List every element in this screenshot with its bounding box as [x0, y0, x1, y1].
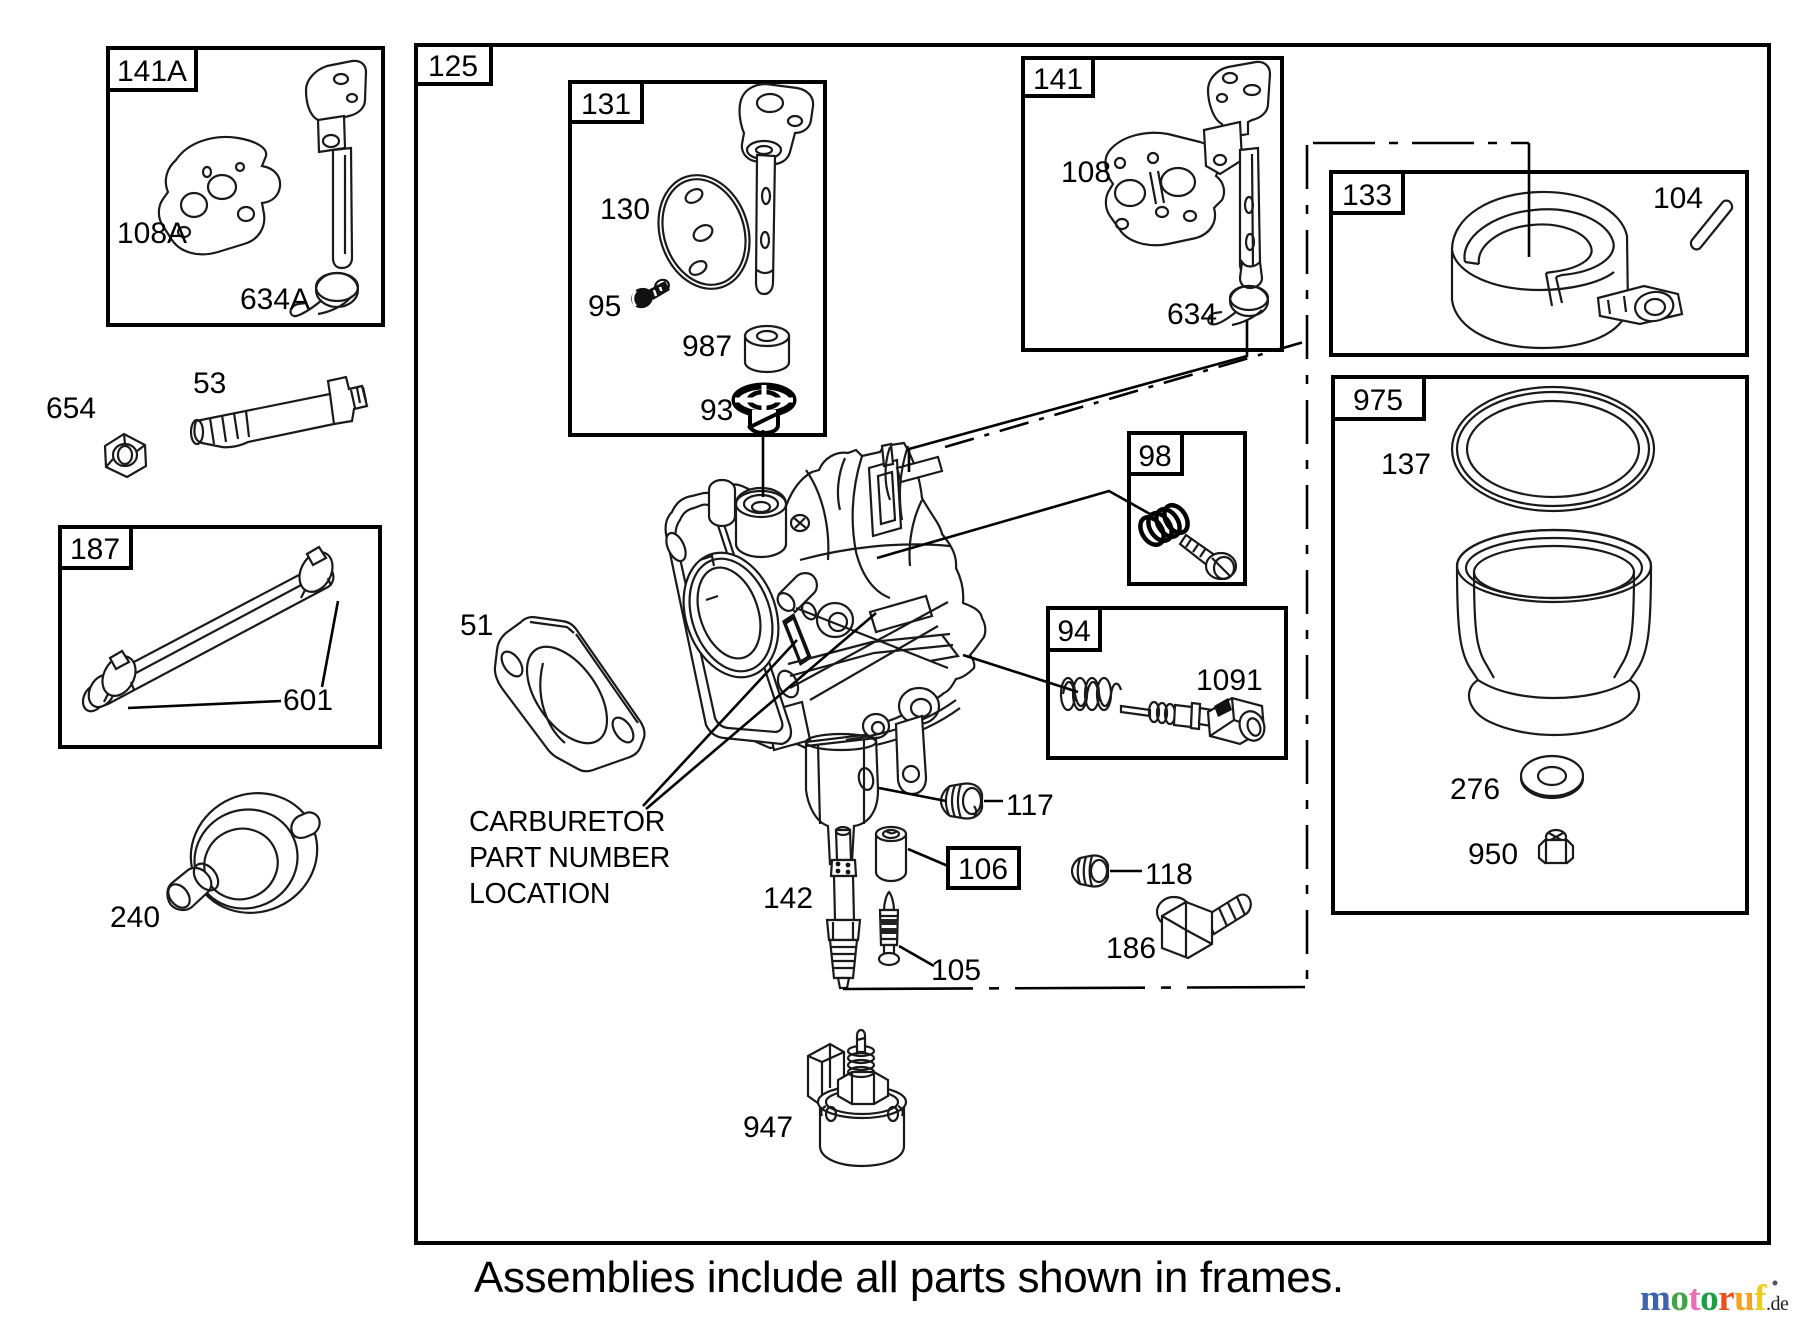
svg-text:108: 108 [1061, 156, 1111, 189]
svg-text:950: 950 [1468, 838, 1518, 871]
svg-text:141A: 141A [117, 55, 187, 88]
svg-text:Assemblies include all parts s: Assemblies include all parts shown in fr… [474, 1253, 1344, 1302]
svg-text:104: 104 [1653, 182, 1703, 215]
svg-text:117: 117 [1006, 789, 1054, 822]
svg-text:987: 987 [682, 330, 732, 363]
svg-text:975: 975 [1353, 384, 1403, 417]
svg-text:276: 276 [1450, 773, 1500, 806]
svg-text:137: 137 [1381, 448, 1431, 481]
svg-text:133: 133 [1342, 179, 1392, 212]
svg-text:634A: 634A [240, 283, 310, 316]
svg-text:130: 130 [600, 193, 650, 226]
svg-text:187: 187 [70, 533, 120, 566]
svg-text:654: 654 [46, 392, 96, 425]
svg-text:95: 95 [588, 290, 621, 323]
svg-text:LOCATION: LOCATION [469, 878, 610, 910]
svg-text:PART NUMBER: PART NUMBER [469, 842, 670, 874]
svg-text:105: 105 [931, 954, 981, 987]
svg-text:142: 142 [763, 882, 813, 915]
svg-text:1091: 1091 [1196, 664, 1263, 697]
svg-text:947: 947 [743, 1111, 793, 1144]
svg-text:51: 51 [460, 609, 493, 642]
svg-text:634: 634 [1167, 298, 1217, 331]
svg-text:108A: 108A [117, 217, 187, 250]
svg-text:94: 94 [1057, 615, 1090, 648]
svg-text:125: 125 [428, 50, 478, 83]
svg-text:240: 240 [110, 901, 160, 934]
svg-text:98: 98 [1138, 440, 1171, 473]
svg-text:601: 601 [283, 684, 333, 717]
svg-text:53: 53 [193, 367, 226, 400]
svg-text:131: 131 [581, 88, 631, 121]
svg-text:CARBURETOR: CARBURETOR [469, 806, 665, 838]
svg-text:186: 186 [1106, 932, 1156, 965]
svg-text:106: 106 [958, 853, 1008, 886]
svg-text:141: 141 [1033, 63, 1083, 96]
svg-text:118: 118 [1145, 858, 1193, 891]
svg-text:93: 93 [700, 394, 733, 427]
